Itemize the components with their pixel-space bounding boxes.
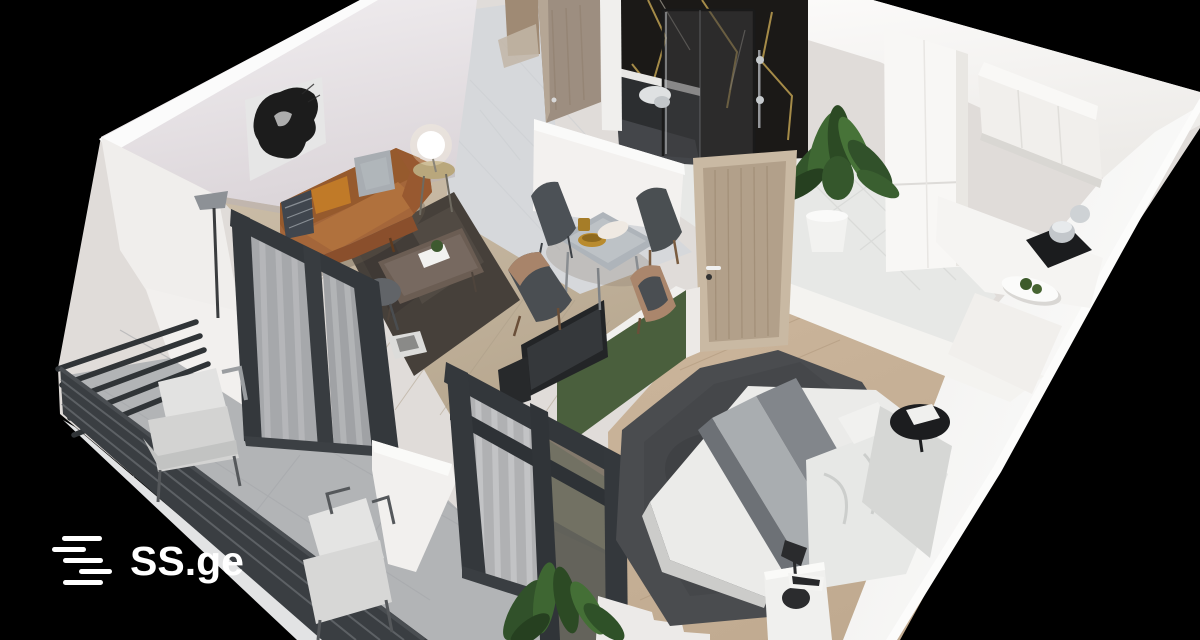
svg-text:SS.ge: SS.ge xyxy=(130,538,244,584)
